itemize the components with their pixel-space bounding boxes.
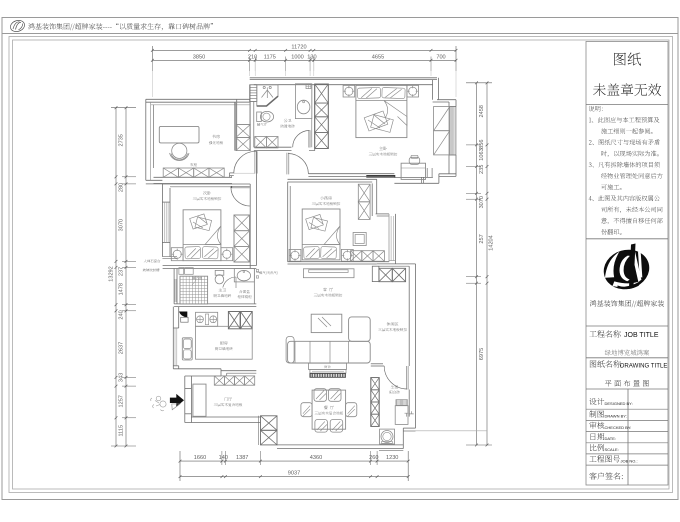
svg-text:9037: 9037 [288, 471, 300, 477]
svg-text:235: 235 [479, 165, 485, 174]
svg-text:4655: 4655 [372, 54, 384, 60]
svg-text:3070: 3070 [119, 219, 125, 231]
svg-text:280: 280 [119, 183, 125, 192]
svg-text:237: 237 [119, 267, 125, 276]
svg-text:343: 343 [119, 373, 125, 382]
svg-text:2735: 2735 [119, 134, 125, 146]
svg-text:14204: 14204 [489, 235, 495, 251]
svg-text:CHECKED BY:: CHECKED BY: [605, 425, 632, 430]
svg-text:11720: 11720 [291, 45, 306, 51]
svg-text:2637: 2637 [119, 342, 125, 354]
svg-text:700: 700 [436, 54, 445, 60]
svg-text:130: 130 [307, 54, 316, 60]
svg-text:1000: 1000 [291, 54, 303, 60]
svg-text:856: 856 [479, 140, 485, 149]
svg-text:DATE:: DATE: [605, 436, 616, 441]
svg-text:240: 240 [119, 310, 125, 319]
svg-text:1478: 1478 [119, 283, 125, 295]
svg-text:1257: 1257 [119, 395, 125, 407]
svg-text:DRAWN BY:: DRAWN BY: [605, 414, 627, 419]
svg-text:JOB TITLE: JOB TITLE [624, 332, 659, 339]
svg-text:3070: 3070 [479, 196, 485, 208]
svg-text:1387: 1387 [236, 455, 248, 461]
svg-text:13292: 13292 [109, 266, 115, 282]
svg-text:SCALE:: SCALE: [605, 447, 619, 452]
svg-text:3850: 3850 [193, 54, 205, 60]
svg-text:2458: 2458 [479, 105, 485, 117]
svg-text:1660: 1660 [194, 455, 206, 461]
svg-text:4360: 4360 [310, 455, 322, 461]
svg-text:260: 260 [369, 455, 378, 461]
svg-text:1063: 1063 [479, 148, 485, 160]
svg-text:JOB NO.:: JOB NO.: [621, 458, 638, 463]
svg-text:140: 140 [219, 455, 228, 461]
svg-text:6975: 6975 [479, 348, 485, 360]
svg-text:DRAWING TITLE: DRAWING TITLE [620, 363, 667, 370]
svg-text:1175: 1175 [264, 54, 276, 60]
svg-text:257: 257 [479, 234, 485, 243]
svg-text:DESIGNED BY:: DESIGNED BY: [605, 401, 633, 406]
svg-text:210: 210 [248, 54, 257, 60]
svg-text:1115: 1115 [119, 425, 125, 437]
svg-text:1230: 1230 [386, 455, 398, 461]
